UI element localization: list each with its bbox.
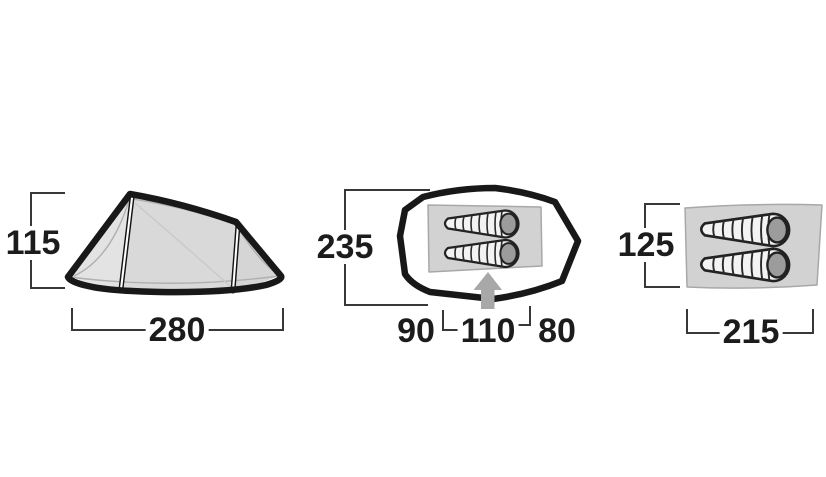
footprint-depth-label: 235 bbox=[314, 230, 377, 264]
tent-footprint-top-view bbox=[345, 188, 578, 330]
side-width-label: 280 bbox=[146, 313, 209, 347]
footprint-left-width-label: 90 bbox=[394, 314, 438, 348]
footprint-right-width-label: 80 bbox=[535, 314, 579, 348]
inner-height-label: 125 bbox=[615, 228, 678, 262]
footprint-entrance-width-label: 110 bbox=[458, 314, 519, 348]
tent-side-view bbox=[31, 193, 283, 330]
inner-width-label: 215 bbox=[720, 315, 783, 349]
side-height-label: 115 bbox=[3, 226, 64, 260]
diagram-artwork bbox=[0, 0, 826, 477]
tent-dimensions-diagram: 115 280 235 90 110 80 125 215 bbox=[0, 0, 826, 477]
